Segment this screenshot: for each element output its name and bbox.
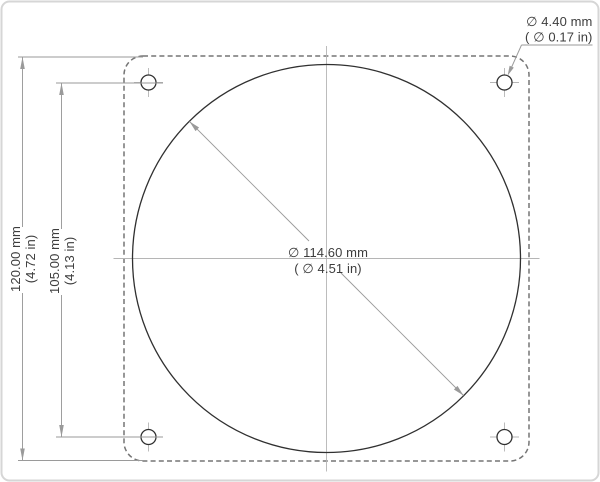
mounting-hole-top-right	[497, 75, 512, 90]
mounting-hole-bottom-right	[497, 430, 512, 445]
overall-dim-label-mm: 120.00 mm	[8, 226, 23, 292]
spacing-dim-label-mm: 105.00 mm	[47, 228, 62, 294]
bore-dim-line-upper	[190, 122, 310, 242]
overall-dim-label-in: (4.72 in)	[23, 235, 38, 284]
bore-dim-line-lower	[341, 273, 464, 396]
bore-dim-label-mm: ∅ 114.60 mm	[288, 245, 368, 260]
technical-drawing-svg: ∅ 114.60 mm ( ∅ 4.51 in) 120.00 mm (4.72…	[0, 0, 600, 482]
overall-dim-arrow-bottom	[20, 449, 25, 461]
overall-dim-arrow-top	[20, 57, 25, 69]
hole-spacing-dimension: 105.00 mm (4.13 in)	[47, 83, 163, 437]
callout-leader-arrow	[508, 66, 514, 76]
hole-dim-label-in: ( ∅ 0.17 in)	[525, 30, 592, 45]
hole-diameter-callout: ∅ 4.40 mm ( ∅ 0.17 in)	[508, 14, 593, 76]
bore-dim-label-in: ( ∅ 4.51 in)	[294, 261, 361, 276]
spacing-dim-arrow-top	[59, 83, 64, 95]
hole-dim-label-mm: ∅ 4.40 mm	[526, 14, 592, 29]
mounting-hole-top-left	[141, 75, 156, 90]
spacing-dim-arrow-bottom	[59, 425, 64, 437]
spacing-dim-label-in: (4.13 in)	[62, 237, 77, 286]
drawing-canvas: ∅ 114.60 mm ( ∅ 4.51 in) 120.00 mm (4.72…	[0, 0, 600, 482]
